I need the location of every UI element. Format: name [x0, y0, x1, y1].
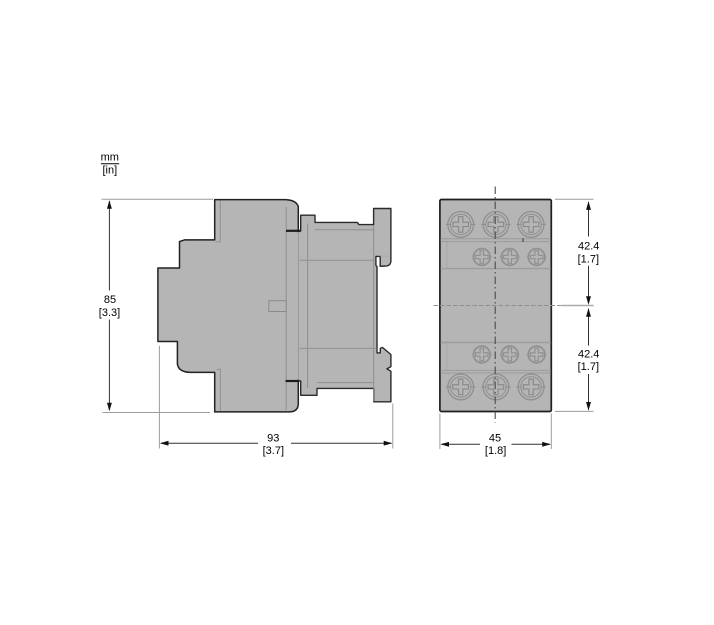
svg-text:42.4: 42.4	[578, 348, 599, 360]
svg-text:[1.7]: [1.7]	[578, 253, 599, 265]
svg-text:[3.7]: [3.7]	[263, 445, 284, 457]
svg-text:[1.8]: [1.8]	[485, 445, 506, 457]
svg-text:93: 93	[267, 433, 279, 445]
svg-text:[3.3]: [3.3]	[99, 307, 120, 319]
svg-text:mm: mm	[101, 151, 119, 163]
svg-text:42.4: 42.4	[578, 240, 599, 252]
svg-text:[in]: [in]	[102, 165, 117, 177]
svg-text:[1.7]: [1.7]	[578, 361, 599, 373]
svg-text:85: 85	[104, 294, 116, 306]
svg-text:45: 45	[489, 432, 501, 444]
